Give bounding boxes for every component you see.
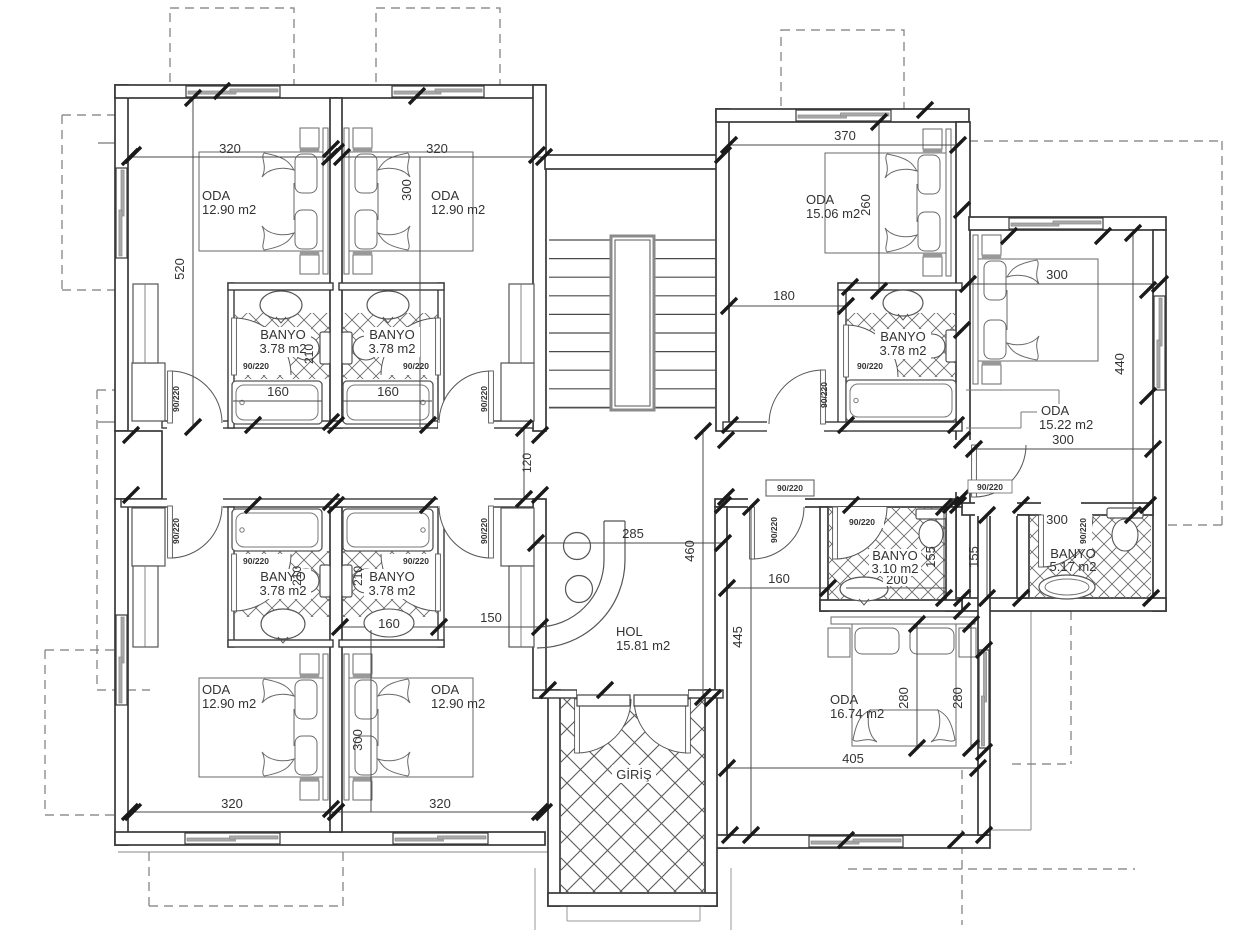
svg-text:90/220: 90/220 xyxy=(1078,518,1088,544)
svg-text:320: 320 xyxy=(429,796,451,811)
svg-text:90/220: 90/220 xyxy=(479,386,489,412)
svg-text:210: 210 xyxy=(351,566,365,586)
svg-text:300: 300 xyxy=(1046,512,1068,527)
svg-text:320: 320 xyxy=(426,141,448,156)
svg-text:90/220: 90/220 xyxy=(243,361,269,371)
svg-text:3.78 m2: 3.78 m2 xyxy=(369,583,416,598)
svg-text:ODA: ODA xyxy=(202,188,231,203)
svg-text:15.22 m2: 15.22 m2 xyxy=(1039,417,1093,432)
svg-text:180: 180 xyxy=(773,288,795,303)
svg-text:90/220: 90/220 xyxy=(403,361,429,371)
svg-text:460: 460 xyxy=(682,540,697,562)
svg-text:12.90 m2: 12.90 m2 xyxy=(202,696,256,711)
svg-text:90/220: 90/220 xyxy=(977,482,1003,492)
svg-text:3.78 m2: 3.78 m2 xyxy=(369,341,416,356)
svg-text:90/220: 90/220 xyxy=(777,483,803,493)
svg-text:90/220: 90/220 xyxy=(819,382,829,408)
svg-text:3.10 m2: 3.10 m2 xyxy=(872,561,919,576)
svg-text:ODA: ODA xyxy=(202,682,231,697)
svg-text:210: 210 xyxy=(290,566,304,586)
svg-text:BANYO: BANYO xyxy=(369,569,415,584)
svg-text:160: 160 xyxy=(768,571,790,586)
svg-text:440: 440 xyxy=(1112,353,1127,375)
svg-text:12.90 m2: 12.90 m2 xyxy=(431,696,485,711)
svg-text:150: 150 xyxy=(480,610,502,625)
svg-text:15.81 m2: 15.81 m2 xyxy=(616,638,670,653)
svg-text:90/220: 90/220 xyxy=(403,556,429,566)
svg-text:280: 280 xyxy=(896,687,911,709)
svg-text:90/220: 90/220 xyxy=(769,517,779,543)
svg-text:15.06 m2: 15.06 m2 xyxy=(806,206,860,221)
svg-text:300: 300 xyxy=(399,179,414,201)
svg-text:16.74 m2: 16.74 m2 xyxy=(830,706,884,721)
svg-text:370: 370 xyxy=(834,128,856,143)
svg-text:BANYO: BANYO xyxy=(880,329,926,344)
svg-text:320: 320 xyxy=(219,141,241,156)
svg-text:HOL: HOL xyxy=(616,624,643,639)
svg-text:12.90 m2: 12.90 m2 xyxy=(202,202,256,217)
svg-text:90/220: 90/220 xyxy=(857,361,883,371)
svg-text:160: 160 xyxy=(267,384,289,399)
svg-text:155: 155 xyxy=(966,546,981,568)
svg-text:90/220: 90/220 xyxy=(171,386,181,412)
svg-text:ODA: ODA xyxy=(1041,403,1070,418)
svg-text:ODA: ODA xyxy=(431,188,460,203)
svg-text:285: 285 xyxy=(622,526,644,541)
svg-text:260: 260 xyxy=(858,194,873,216)
svg-text:5.17 m2: 5.17 m2 xyxy=(1050,559,1097,574)
svg-text:90/220: 90/220 xyxy=(849,517,875,527)
svg-text:BANYO: BANYO xyxy=(260,327,306,342)
svg-text:3.78 m2: 3.78 m2 xyxy=(880,343,927,358)
svg-text:GİRİŞ: GİRİŞ xyxy=(616,767,652,782)
svg-text:160: 160 xyxy=(378,616,400,631)
svg-text:BANYO: BANYO xyxy=(369,327,415,342)
svg-text:520: 520 xyxy=(172,258,187,280)
svg-text:155: 155 xyxy=(923,546,938,568)
svg-text:405: 405 xyxy=(842,751,864,766)
svg-text:300: 300 xyxy=(1046,267,1068,282)
svg-text:445: 445 xyxy=(730,626,745,648)
svg-text:ODA: ODA xyxy=(830,692,859,707)
svg-text:120: 120 xyxy=(520,453,534,473)
svg-text:320: 320 xyxy=(221,796,243,811)
svg-text:160: 160 xyxy=(377,384,399,399)
svg-text:ODA: ODA xyxy=(806,192,835,207)
svg-text:3.78 m2: 3.78 m2 xyxy=(260,341,307,356)
svg-text:300: 300 xyxy=(350,729,365,751)
svg-text:210: 210 xyxy=(302,344,316,364)
svg-text:12.90 m2: 12.90 m2 xyxy=(431,202,485,217)
svg-text:90/220: 90/220 xyxy=(479,518,489,544)
svg-text:280: 280 xyxy=(950,687,965,709)
svg-text:90/220: 90/220 xyxy=(171,518,181,544)
svg-text:300: 300 xyxy=(1052,432,1074,447)
svg-text:90/220: 90/220 xyxy=(243,556,269,566)
svg-text:ODA: ODA xyxy=(431,682,460,697)
